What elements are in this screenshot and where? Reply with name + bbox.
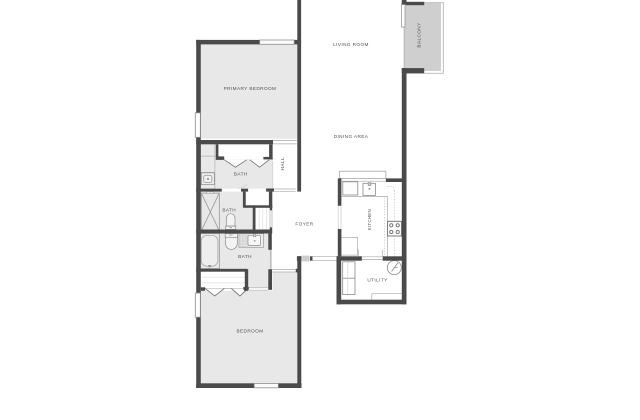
- svg-text:HALL: HALL: [280, 157, 285, 170]
- svg-text:UTILITY: UTILITY: [367, 278, 388, 283]
- svg-text:BATH: BATH: [234, 172, 248, 177]
- svg-text:DINING AREA: DINING AREA: [334, 134, 369, 139]
- svg-text:PRIMARY BEDROOM: PRIMARY BEDROOM: [224, 86, 277, 91]
- svg-text:BATH: BATH: [222, 208, 236, 213]
- svg-text:BALCONY: BALCONY: [417, 22, 422, 48]
- svg-text:LIVING ROOM: LIVING ROOM: [333, 42, 369, 47]
- svg-text:BATH: BATH: [238, 254, 252, 259]
- svg-text:BEDROOM: BEDROOM: [236, 329, 263, 334]
- svg-text:KITCHEN: KITCHEN: [367, 209, 372, 230]
- svg-text:FOYER: FOYER: [295, 221, 313, 226]
